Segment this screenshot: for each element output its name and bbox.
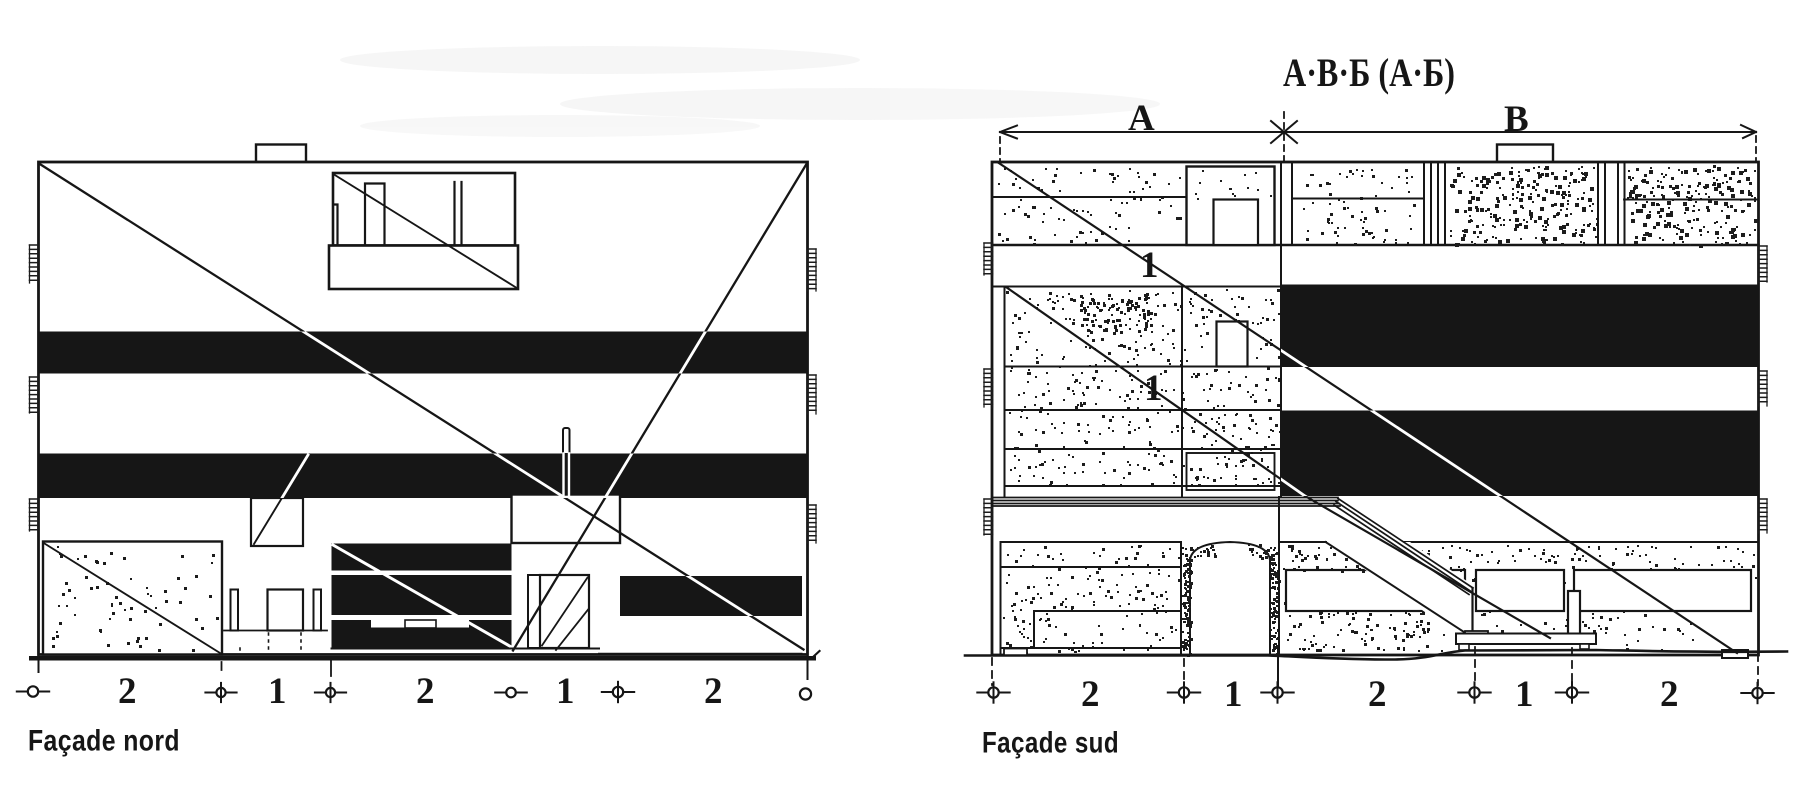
svg-text:1: 1 xyxy=(1515,674,1534,715)
svg-text:2: 2 xyxy=(1081,674,1100,715)
svg-text:1: 1 xyxy=(556,671,575,712)
svg-text:Façade sud: Façade sud xyxy=(982,727,1119,760)
svg-text:B: B xyxy=(1504,99,1529,140)
svg-text:1: 1 xyxy=(1144,368,1163,409)
svg-text:2: 2 xyxy=(118,671,137,712)
svg-text:1: 1 xyxy=(268,671,287,712)
svg-text:A: A xyxy=(1128,98,1155,139)
svg-text:Façade nord: Façade nord xyxy=(28,725,180,758)
svg-text:A·B·Б (А·Б): A·B·Б (А·Б) xyxy=(1283,50,1455,95)
svg-text:2: 2 xyxy=(1660,674,1679,715)
svg-text:2: 2 xyxy=(1368,674,1387,715)
svg-text:1: 1 xyxy=(1224,674,1243,715)
svg-text:2: 2 xyxy=(416,671,435,712)
svg-text:2: 2 xyxy=(704,671,723,712)
svg-text:1: 1 xyxy=(1140,245,1159,286)
